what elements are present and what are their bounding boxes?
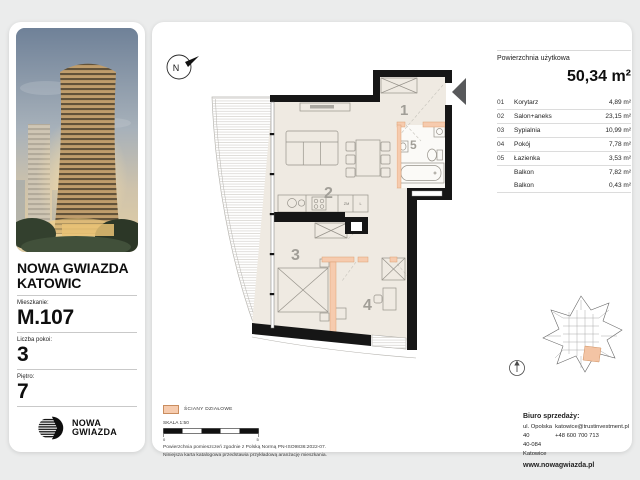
room-name: Łazienka xyxy=(514,155,609,162)
key-plan xyxy=(533,290,629,386)
bathroom-window xyxy=(412,191,442,196)
room-name: Pokój xyxy=(514,141,609,148)
room-area: 7,82 m² xyxy=(609,169,631,176)
contact-address-line2: 40-084 Katowice xyxy=(523,441,555,459)
room-name: Korytarz xyxy=(514,99,609,106)
floor-plan: 1 2 3 4 5 ZM L N xyxy=(160,45,480,375)
usable-area-label: Powierzchnia użytkowa xyxy=(497,55,631,62)
room-name: Sypialnia xyxy=(514,127,605,134)
floor-number: 7 xyxy=(17,381,137,402)
disclaimer-line1: Powierzchnia pomieszczeń zgodnie z Polsk… xyxy=(163,444,327,452)
contact-address-line1: ul. Opolska 40 xyxy=(523,423,555,441)
disclaimer: Powierzchnia pomieszczeń zgodnie z Polsk… xyxy=(163,444,327,459)
page: { "sidebar": { "project_title_line1": "N… xyxy=(0,0,640,480)
room-area: 4,89 m² xyxy=(609,99,631,106)
brand-logo-icon xyxy=(37,414,65,442)
legend: ŚCIANY DZIAŁOWE xyxy=(163,405,233,414)
table-row: 04Pokój7,78 m² xyxy=(497,138,631,152)
room-name: Balkon xyxy=(514,182,609,189)
rooms-field-label: Liczba pokoi: xyxy=(17,337,137,343)
building-photo xyxy=(16,28,138,252)
partition-wall-swatch xyxy=(163,405,179,414)
contact-phone: +48 600 700 713 xyxy=(555,432,629,441)
table-row: 05Łazienka3,53 m² xyxy=(497,152,631,166)
contact-heading: Biuro sprzedaży: xyxy=(523,413,629,420)
brand-logo-text: NOWA GWIAZDA xyxy=(72,419,117,438)
key-plan-unit-highlight xyxy=(583,346,601,362)
room-no: 01 xyxy=(497,99,514,106)
room-no: 05 xyxy=(497,155,514,162)
north-label: N xyxy=(173,63,180,73)
divider xyxy=(17,295,137,296)
contact-email: katowice@trustinvestment.pl xyxy=(555,423,629,432)
table-row: Balkon7,82 m² xyxy=(497,166,631,179)
plan-sheet-card: 1 2 3 4 5 ZM L N xyxy=(152,22,632,452)
table-row: 01Korytarz4,89 m² xyxy=(497,96,631,110)
usable-area-value: 50,34 m² xyxy=(497,68,631,86)
room-no: 03 xyxy=(497,127,514,134)
room-area: 0,43 m² xyxy=(609,182,631,189)
room-area: 10,99 m² xyxy=(605,127,631,134)
room-name: Balkon xyxy=(514,169,609,176)
table-row: 03Sypialnia10,99 m² xyxy=(497,124,631,138)
project-title-line2: KATOWIC xyxy=(17,275,81,291)
north-arrow-icon: N xyxy=(167,55,199,79)
room-label-3: 3 xyxy=(291,247,300,264)
room-no: 04 xyxy=(497,141,514,148)
disclaimer-line2: Niniejsza karta katalogowa przedstawia p… xyxy=(163,452,327,460)
dishwasher-label: ZM xyxy=(344,202,349,206)
room-area: 3,53 m² xyxy=(609,155,631,162)
project-title: NOWA GWIAZDA KATOWIC xyxy=(17,261,137,291)
apartment-number: M.107 xyxy=(17,307,137,328)
mini-compass-icon xyxy=(506,357,528,379)
room-label-4: 4 xyxy=(363,297,372,314)
shaft-opening xyxy=(351,222,362,231)
room-label-2: 2 xyxy=(324,185,333,202)
room-area: 23,15 m² xyxy=(605,113,631,120)
divider xyxy=(17,369,137,370)
legend-label: ŚCIANY DZIAŁOWE xyxy=(184,407,233,412)
project-title-line1: NOWA GWIAZDA xyxy=(17,260,128,276)
divider xyxy=(17,332,137,333)
brand-text-line2: GWIAZDA xyxy=(72,428,117,438)
scale-tick-start: 0 xyxy=(163,437,166,442)
room-name: Salon+aneks xyxy=(514,113,605,120)
table-row: 02Salon+aneks23,15 m² xyxy=(497,110,631,124)
scale-bar: 0 5 xyxy=(163,428,263,442)
contact-website: www.nowagwiazda.pl xyxy=(523,462,629,469)
fridge-label: L xyxy=(359,202,361,206)
entrance-door-marker xyxy=(452,78,466,105)
scale-label: SKALA 1:50 xyxy=(163,421,189,426)
divider xyxy=(17,406,137,407)
brand-logo: NOWA GWIAZDA xyxy=(9,414,145,442)
scale-tick-end: 5 xyxy=(257,437,260,442)
rooms-count: 3 xyxy=(17,344,137,365)
table-row: Balkon0,43 m² xyxy=(497,179,631,193)
room-label-1: 1 xyxy=(400,102,408,119)
room-table: 01Korytarz4,89 m² 02Salon+aneks23,15 m² … xyxy=(497,96,631,193)
room-label-5: 5 xyxy=(410,138,417,152)
floor-field-label: Piętro: xyxy=(17,374,137,380)
sidebar-card: NOWA GWIAZDA KATOWIC Mieszkanie: M.107 L… xyxy=(9,22,145,452)
area-panel: Powierzchnia użytkowa 50,34 m² 01Korytar… xyxy=(497,50,631,193)
sales-office-contact: Biuro sprzedaży: ul. Opolska 40 40-084 K… xyxy=(523,413,629,469)
room-area: 7,78 m² xyxy=(609,141,631,148)
building-render-art xyxy=(16,28,138,252)
room-no: 02 xyxy=(497,113,514,120)
